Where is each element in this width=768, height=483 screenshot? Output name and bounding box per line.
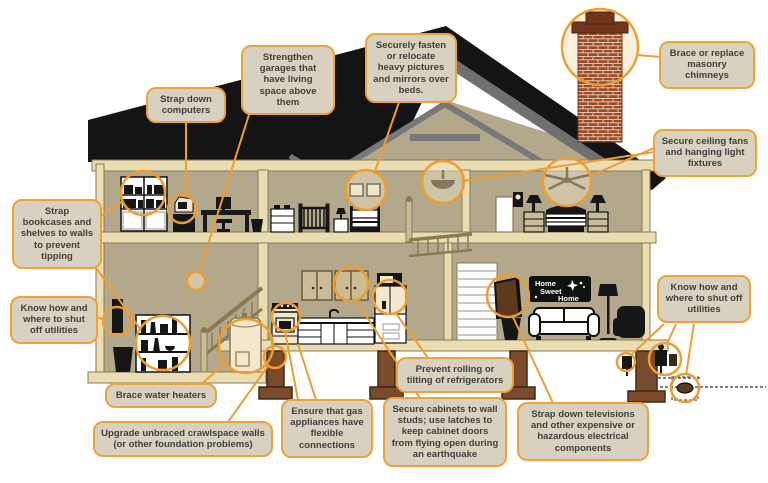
- computer-icon: [173, 197, 195, 232]
- garage-wall-highlight: [187, 272, 205, 290]
- callout-strap-televisions: Strap down televisions and other expensi…: [517, 402, 649, 461]
- callout-text: Securely fasten or relocate heavy pictur…: [373, 40, 449, 96]
- callout-upgrade-crawlspace: Upgrade unbraced crawlspace walls (or ot…: [93, 421, 273, 457]
- sign-line3: Home: [558, 294, 579, 303]
- callout-brace-water-heaters: Brace water heaters: [105, 383, 217, 408]
- garage-floor-slab: [88, 372, 266, 383]
- callout-secure-cabinets: Secure cabinets to wall studs; use latch…: [383, 397, 507, 467]
- wall-clock-icon: [513, 192, 523, 207]
- pictures-highlight: [346, 170, 386, 210]
- callout-text: Know how and where to shut off utilities: [20, 303, 87, 336]
- master-bed-icon: [546, 205, 586, 232]
- garage-trash-can-icon: [113, 347, 133, 372]
- upper-floor-slab: [90, 232, 656, 243]
- callout-text: Ensure that gas appliances have flexible…: [290, 406, 363, 451]
- callout-text: Prevent rolling or tilting of refrigerat…: [407, 364, 504, 386]
- callout-text: Upgrade unbraced crawlspace walls (or ot…: [101, 428, 265, 450]
- callout-prevent-refrigerators: Prevent rolling or tilting of refrigerat…: [396, 357, 514, 393]
- armchair-icon: [613, 306, 645, 338]
- callout-text: Know how and where to shut off utilities: [666, 282, 743, 315]
- callout-know-utilities-right: Know how and where to shut off utilities: [657, 275, 751, 323]
- callout-gas-flexible: Ensure that gas appliances have flexible…: [281, 399, 373, 458]
- callout-text: Strap down computers: [160, 94, 212, 116]
- callout-text: Strengthen garages that have living spac…: [259, 52, 316, 108]
- bookcase-icon: [121, 177, 167, 231]
- callout-text: Brace or replace masonry chimneys: [670, 48, 744, 81]
- collar-beam: [410, 134, 480, 141]
- callout-text: Strap bookcases and shelves to walls to …: [21, 206, 93, 262]
- callout-strap-computers: Strap down computers: [146, 87, 226, 123]
- callout-text: Secure cabinets to wall studs; use latch…: [392, 404, 499, 460]
- trash-can-icon: [251, 219, 263, 232]
- callout-text: Brace water heaters: [116, 390, 206, 401]
- callout-secure-ceiling-fans: Secure ceiling fans and hanging light fi…: [653, 129, 757, 177]
- callout-text: Secure ceiling fans and hanging light fi…: [662, 136, 749, 169]
- callout-text: Strap down televisions and other expensi…: [531, 409, 635, 454]
- dresser-icon: [271, 205, 294, 232]
- light-highlight: [422, 161, 464, 203]
- callout-brace-chimneys: Brace or replace masonry chimneys: [659, 41, 755, 89]
- callout-fasten-pictures: Securely fasten or relocate heavy pictur…: [365, 33, 457, 103]
- callout-strengthen-garages: Strengthen garages that have living spac…: [241, 45, 335, 115]
- callout-strap-bookcases: Strap bookcases and shelves to walls to …: [12, 199, 102, 269]
- door-icon: [496, 197, 513, 232]
- home-sweet-home-sign: Home Sweet Home: [529, 276, 591, 303]
- earthquake-home-diagram: Home Sweet Home: [0, 0, 768, 483]
- callout-know-utilities-left: Know how and where to shut off utilities: [10, 296, 98, 344]
